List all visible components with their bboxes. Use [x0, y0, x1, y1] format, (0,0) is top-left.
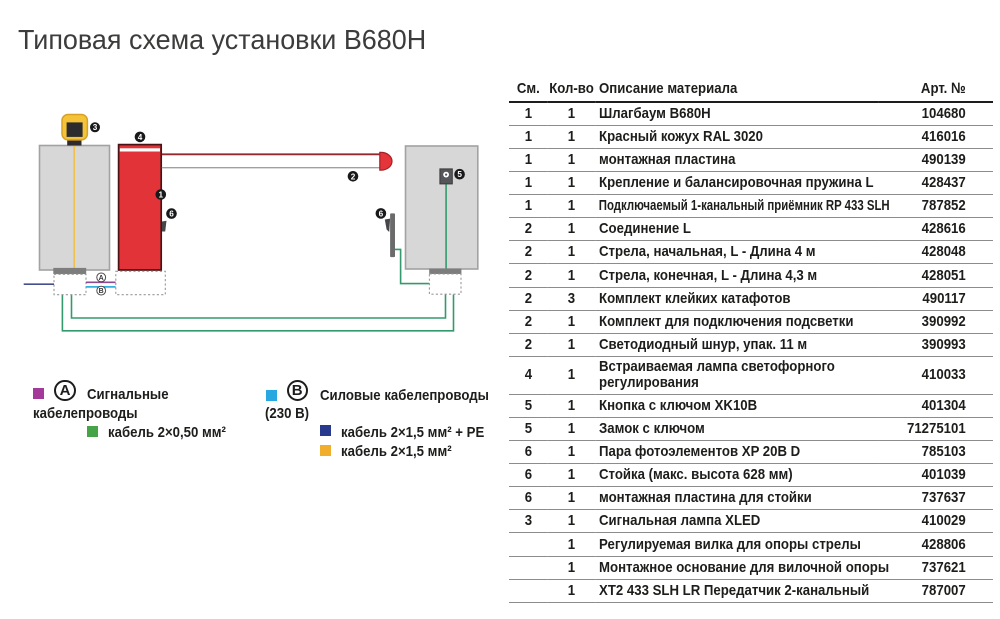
svg-text:B: B	[99, 288, 104, 295]
svg-text:5: 5	[457, 170, 462, 179]
svg-text:A: A	[99, 275, 104, 282]
svg-text:4: 4	[138, 133, 143, 142]
svg-text:2: 2	[351, 172, 356, 181]
svg-text:3: 3	[93, 123, 98, 132]
svg-text:6: 6	[169, 210, 174, 219]
svg-text:1: 1	[159, 191, 164, 200]
svg-text:6: 6	[379, 209, 384, 218]
